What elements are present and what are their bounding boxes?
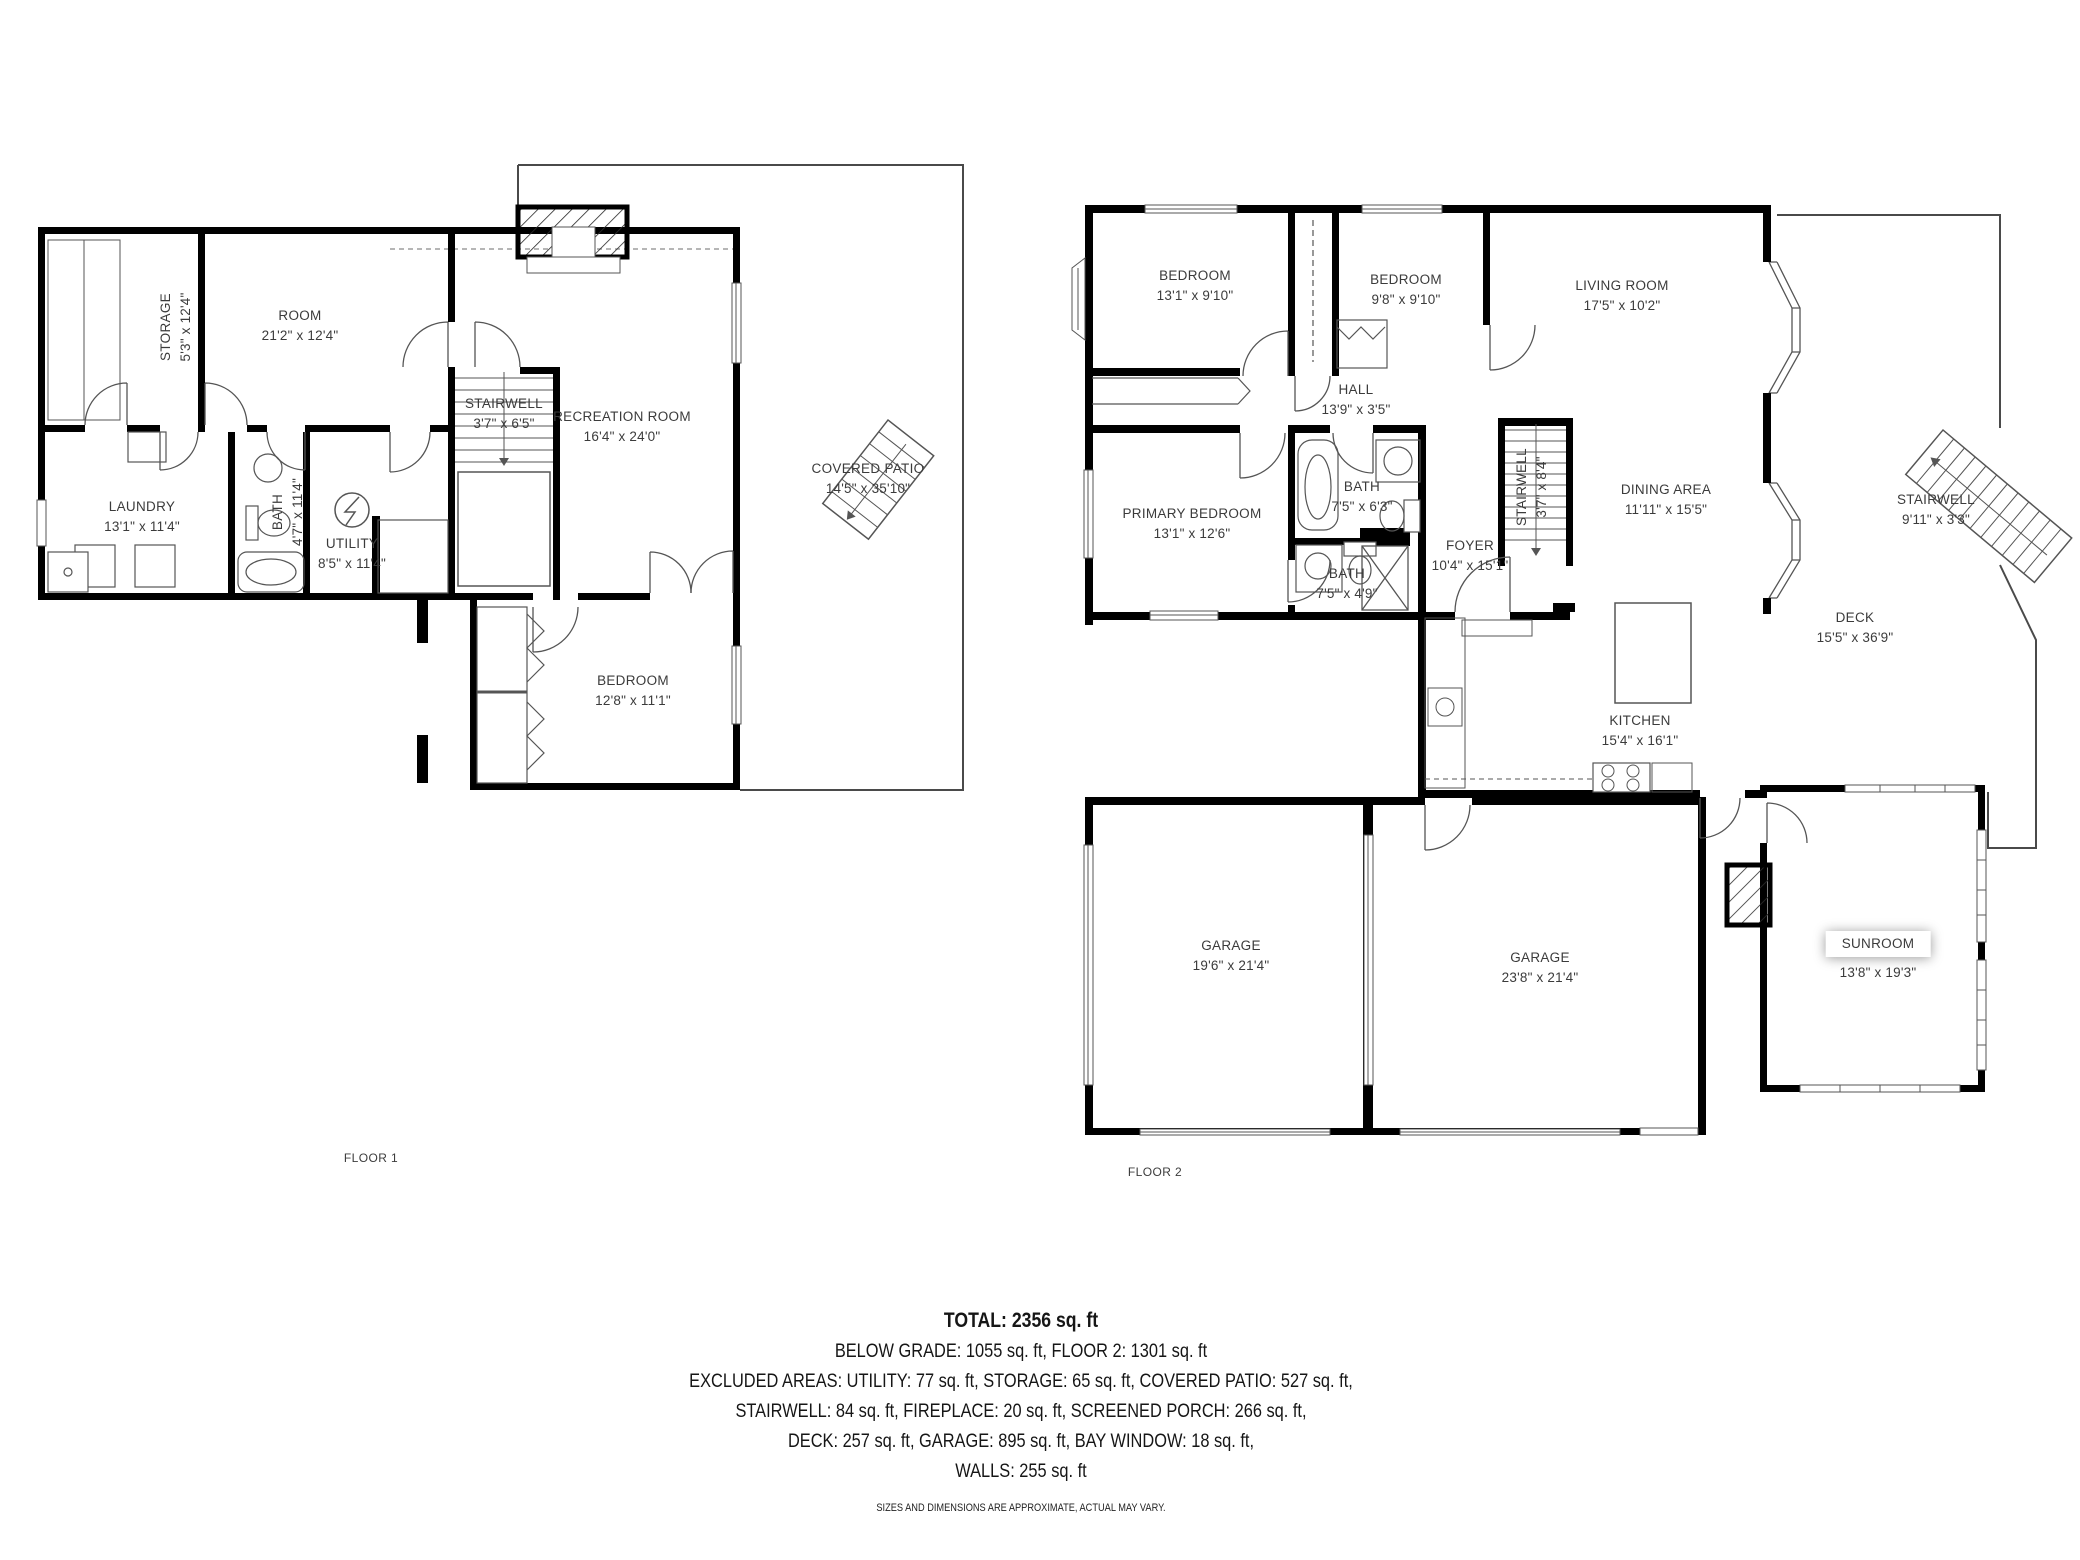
room-label-kitchen: KITCHEN 15'4" x 16'1" bbox=[1602, 711, 1679, 751]
floor2-caption: FLOOR 2 bbox=[1128, 1165, 1182, 1179]
room-label-stairwell-f1: STAIRWELL 3'7" x 6'5" bbox=[465, 394, 543, 434]
summary-line-2: BELOW GRADE: 1055 sq. ft, FLOOR 2: 1301 … bbox=[163, 1336, 1878, 1366]
room-label-primary-bedroom: PRIMARY BEDROOM 13'1" x 12'6" bbox=[1122, 504, 1261, 544]
room-label-stairwell-inner: STAIRWELL 3'7" x 8'4" bbox=[1512, 448, 1552, 526]
summary-disclaimer: SIZES AND DIMENSIONS ARE APPROXIMATE, AC… bbox=[163, 1502, 1878, 1514]
floor2-windows bbox=[1072, 205, 1986, 1135]
room-label-foyer: FOYER 10'4" x 15'1" bbox=[1432, 536, 1509, 576]
room-label-garage-right: GARAGE 23'8" x 21'4" bbox=[1502, 948, 1579, 988]
kitchen-fixtures bbox=[1425, 603, 1692, 792]
fireplace-icon bbox=[518, 207, 627, 273]
room-label-bedroom-f1: BEDROOM 12'8" x 11'1" bbox=[595, 671, 671, 711]
room-label-bath-lower: BATH 7'5" x 4'9" bbox=[1316, 564, 1377, 604]
room-label-hall: HALL 13'9" x 3'5" bbox=[1322, 380, 1391, 420]
room-label-living-room: LIVING ROOM 17'5" x 10'2" bbox=[1575, 276, 1668, 316]
room-label-garage-left: GARAGE 19'6" x 21'4" bbox=[1193, 936, 1270, 976]
summary-line-3: EXCLUDED AREAS: UTILITY: 77 sq. ft, STOR… bbox=[163, 1366, 1878, 1396]
summary-block: TOTAL: 2356 sq. ft BELOW GRADE: 1055 sq.… bbox=[0, 1306, 2042, 1514]
fireplace2-icon bbox=[1727, 865, 1770, 925]
electrical-panel-icon bbox=[335, 493, 369, 527]
room-label-room: ROOM 21'2" x 12'4" bbox=[262, 306, 339, 346]
room-label-bath-upper: BATH 7'5" x 6'3" bbox=[1331, 477, 1392, 517]
room-label-dining-area: DINING AREA 11'11" x 15'5" bbox=[1621, 480, 1711, 520]
summary-total: TOTAL: 2356 sq. ft bbox=[163, 1306, 1878, 1336]
storage-shelves bbox=[48, 240, 120, 420]
floor2-walls bbox=[1085, 205, 1985, 1135]
front-stoop bbox=[1462, 620, 1532, 636]
summary-line-5: DECK: 257 sq. ft, GARAGE: 895 sq. ft, BA… bbox=[163, 1426, 1878, 1456]
utility-closet bbox=[378, 520, 448, 593]
bay-windows-east bbox=[1769, 262, 1800, 598]
room-label-deck: DECK 15'5" x 36'9" bbox=[1817, 608, 1894, 648]
floor2-drawing bbox=[1072, 205, 2072, 1135]
room-label-utility: UTILITY 8'5" x 11'4" bbox=[318, 534, 386, 574]
room-label-laundry: LAUNDRY 13'1" x 11'4" bbox=[104, 497, 180, 537]
room-label-bedroom-left: BEDROOM 13'1" x 9'10" bbox=[1157, 266, 1234, 306]
room-label-sunroom: SUNROOM 13'8" x 19'3" bbox=[1826, 931, 1931, 983]
room-label-bedroom-right: BEDROOM 9'8" x 9'10" bbox=[1370, 270, 1442, 310]
summary-line-6: WALLS: 255 sq. ft bbox=[163, 1456, 1878, 1486]
summary-line-4: STAIRWELL: 84 sq. ft, FIREPLACE: 20 sq. … bbox=[163, 1396, 1878, 1426]
floor1-doors bbox=[85, 322, 733, 652]
room-label-stairwell-deck: STAIRWELL 9'11" x 3'3" bbox=[1897, 490, 1975, 530]
floor1-caption: FLOOR 1 bbox=[344, 1151, 398, 1165]
hall-bay-window-seat bbox=[1092, 378, 1250, 404]
room-label-recreation: RECREATION ROOM 16'4" x 24'0" bbox=[553, 407, 691, 447]
room-label-covered-patio: COVERED PATIO 14'5" x 35'10" bbox=[812, 459, 925, 499]
room-label-bath-f1: BATH 4'7" x 11'4" bbox=[268, 478, 308, 546]
floorplan-canvas: STORAGE 5'3" x 12'4" ROOM 21'2" x 12'4" … bbox=[0, 0, 2080, 1560]
room-label-storage: STORAGE 5'3" x 12'4" bbox=[156, 293, 196, 362]
bedroom-closets bbox=[477, 607, 544, 783]
